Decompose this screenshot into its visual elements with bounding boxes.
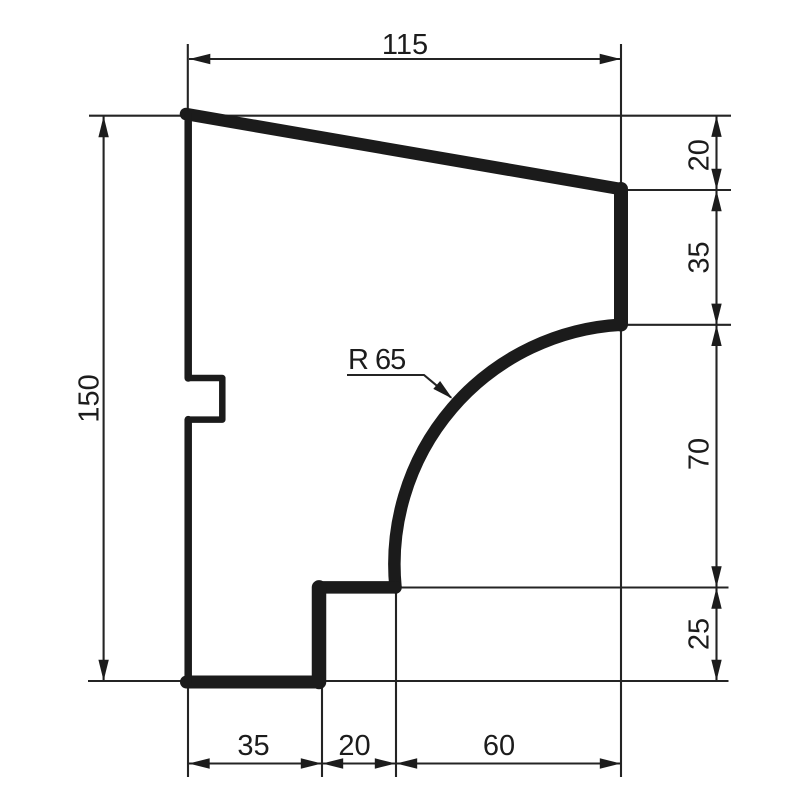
svg-text:20: 20: [684, 139, 716, 171]
svg-text:20: 20: [338, 730, 370, 762]
svg-text:35: 35: [684, 241, 716, 273]
svg-text:35: 35: [237, 730, 269, 762]
svg-text:70: 70: [684, 438, 716, 470]
svg-text:115: 115: [382, 29, 428, 61]
svg-text:60: 60: [483, 730, 515, 762]
svg-text:R 65: R 65: [348, 344, 405, 376]
svg-text:150: 150: [74, 374, 106, 422]
svg-text:25: 25: [684, 618, 716, 650]
